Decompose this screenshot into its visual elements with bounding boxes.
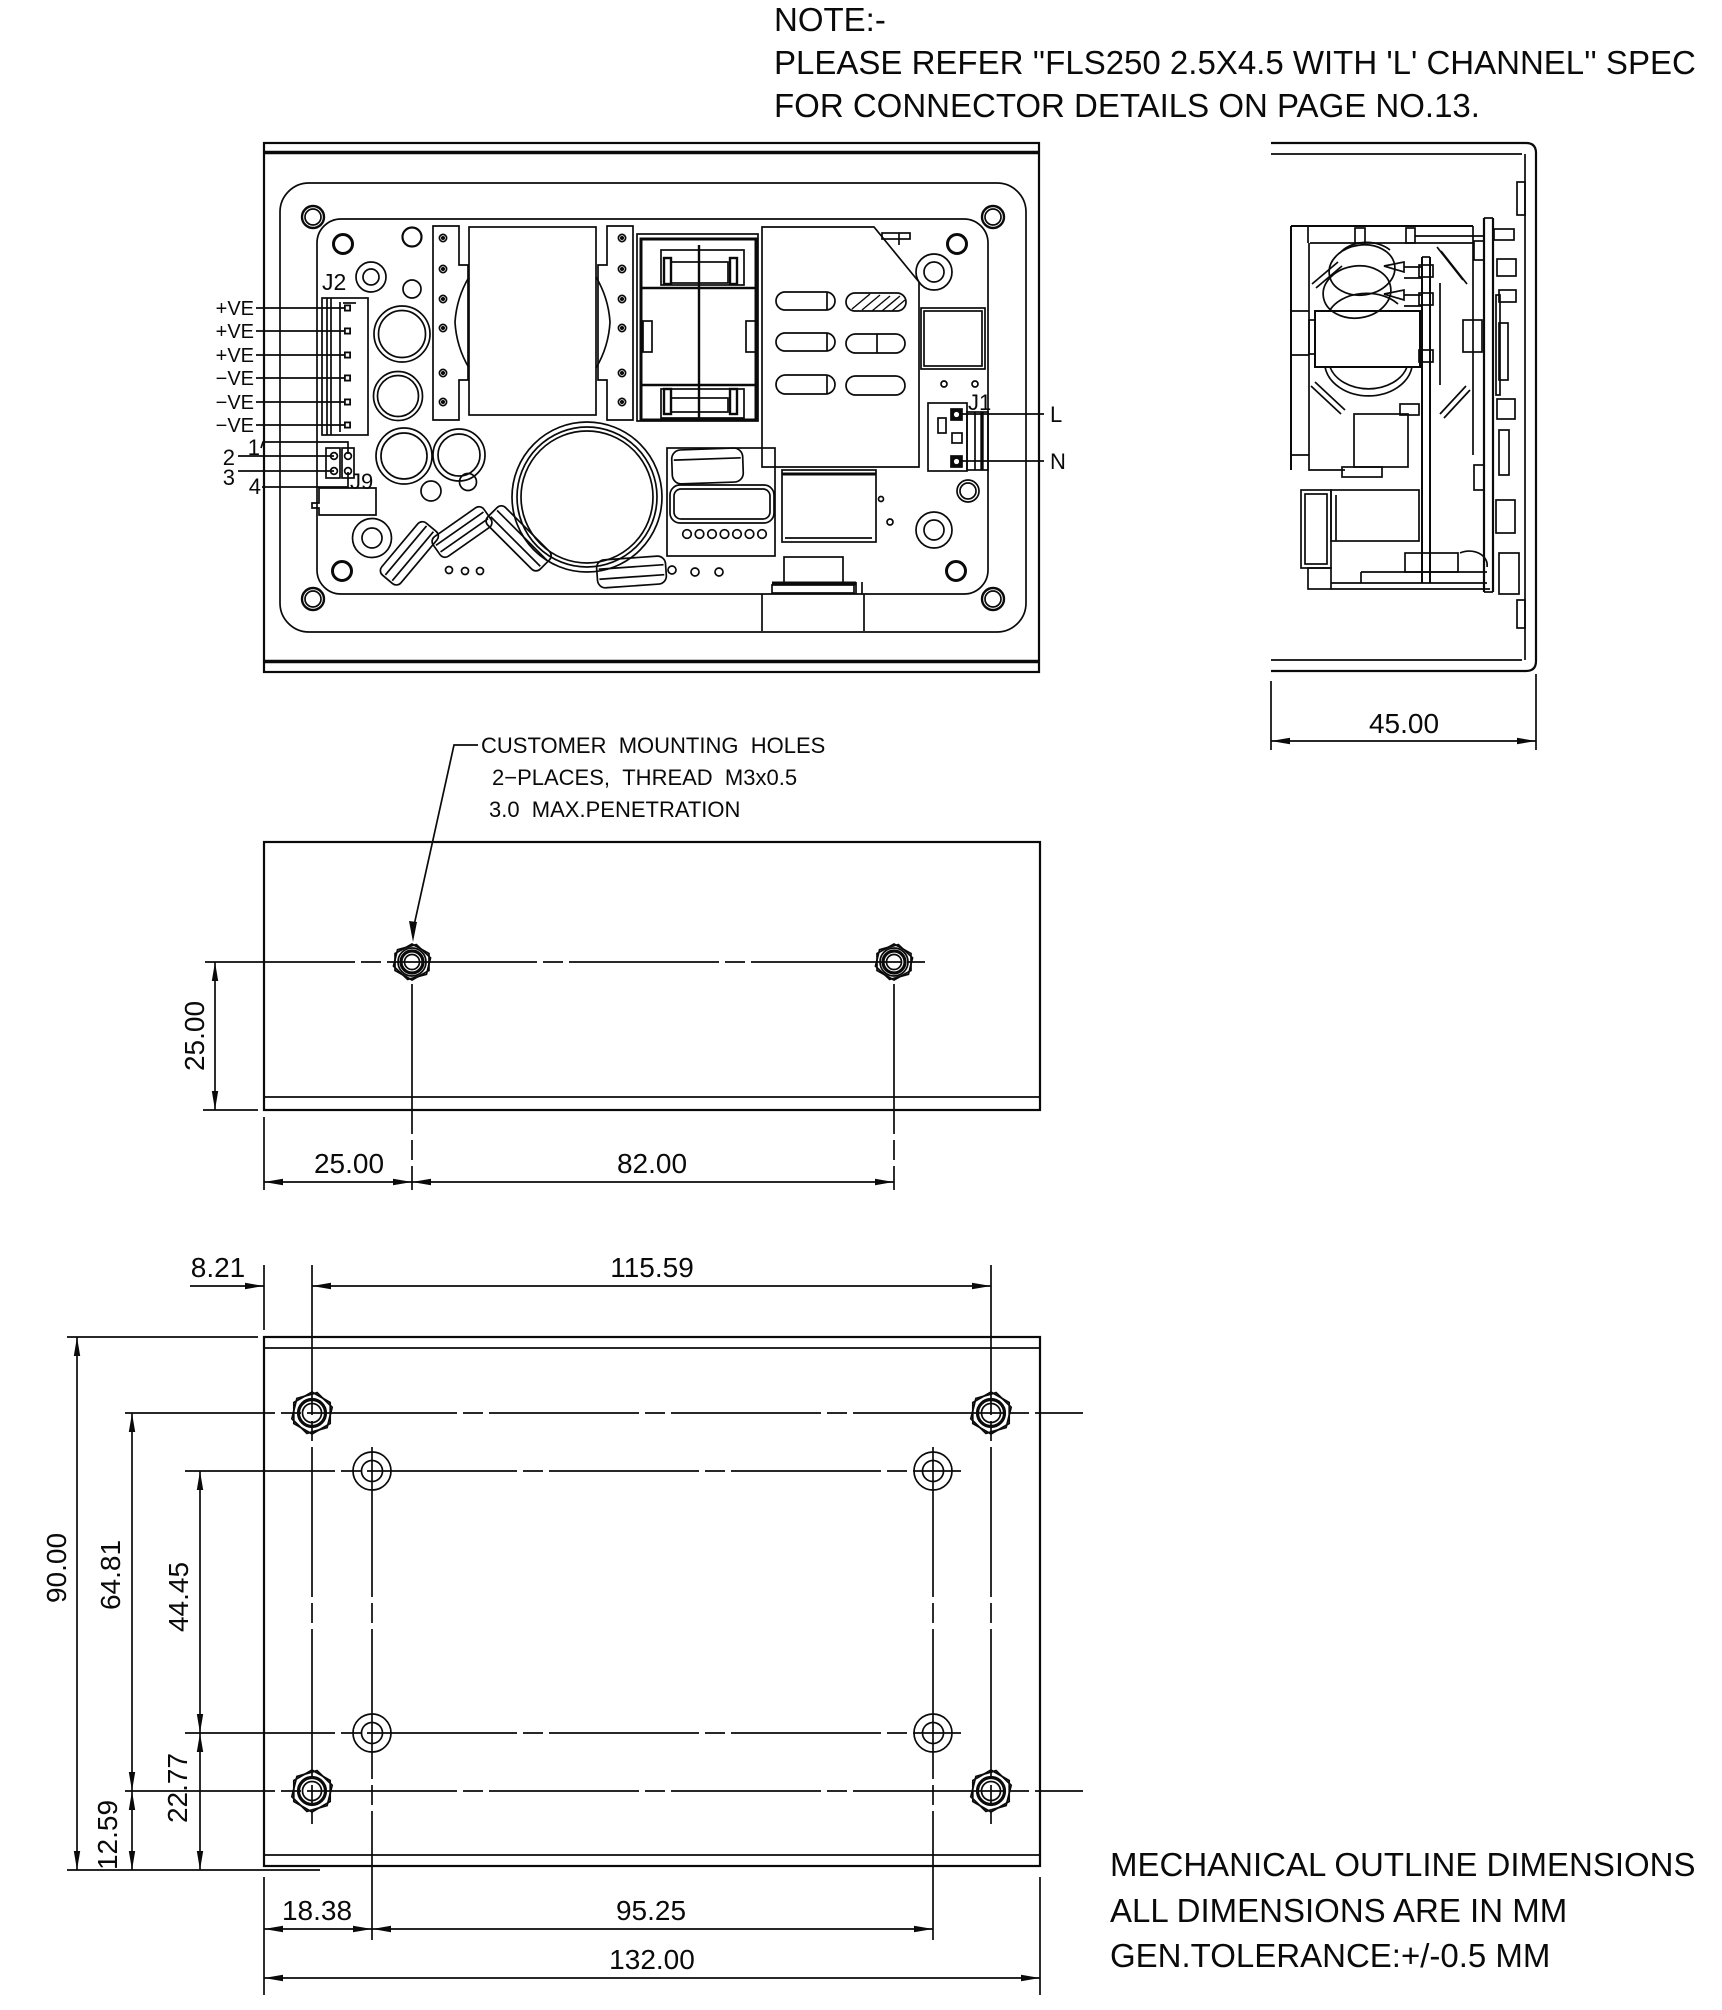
svg-text:115.59: 115.59 — [610, 1252, 694, 1283]
svg-text:90.00: 90.00 — [41, 1533, 72, 1603]
svg-text:3: 3 — [223, 465, 235, 490]
svg-text:J2: J2 — [322, 269, 346, 295]
svg-text:GEN.TOLERANCE:+/-0.5 MM: GEN.TOLERANCE:+/-0.5 MM — [1110, 1937, 1550, 1974]
svg-text:12.59: 12.59 — [92, 1800, 123, 1870]
svg-text:+VE: +VE — [216, 298, 254, 320]
svg-text:−VE: −VE — [216, 392, 254, 414]
svg-text:45.00: 45.00 — [1369, 708, 1439, 739]
svg-text:FOR CONNECTOR DETAILS ON PAGE: FOR CONNECTOR DETAILS ON PAGE NO.13. — [774, 87, 1480, 124]
svg-text:132.00: 132.00 — [609, 1944, 695, 1975]
svg-text:25.00: 25.00 — [314, 1148, 384, 1179]
svg-text:−VE: −VE — [216, 415, 254, 437]
svg-text:3.0 MAX.PENETRATION: 3.0 MAX.PENETRATION — [489, 797, 740, 822]
svg-text:+VE: +VE — [216, 321, 254, 343]
svg-text:18.38: 18.38 — [282, 1895, 352, 1926]
svg-text:4: 4 — [249, 474, 261, 499]
svg-text:N: N — [1050, 449, 1066, 474]
svg-text:25.00: 25.00 — [179, 1001, 210, 1071]
svg-text:82.00: 82.00 — [617, 1148, 687, 1179]
svg-text:95.25: 95.25 — [616, 1895, 686, 1926]
svg-text:64.81: 64.81 — [95, 1540, 126, 1610]
svg-text:−VE: −VE — [216, 368, 254, 390]
svg-text:2−PLACES, THREAD M3x0.5: 2−PLACES, THREAD M3x0.5 — [492, 765, 797, 790]
svg-text:NOTE:-: NOTE:- — [774, 1, 886, 38]
svg-text:J9: J9 — [350, 469, 373, 494]
svg-text:MECHANICAL OUTLINE DIMENSIONS: MECHANICAL OUTLINE DIMENSIONS — [1110, 1846, 1696, 1883]
svg-text:8.21: 8.21 — [191, 1252, 246, 1283]
svg-text:ALL DIMENSIONS ARE IN MM: ALL DIMENSIONS ARE IN MM — [1110, 1892, 1567, 1929]
svg-text:L: L — [1050, 402, 1062, 427]
svg-text:22.77: 22.77 — [162, 1753, 193, 1823]
svg-text:PLEASE REFER ''FLS250 2.5X4.5: PLEASE REFER ''FLS250 2.5X4.5 WITH 'L' C… — [774, 44, 1696, 81]
svg-text:CUSTOMER MOUNTING HOLES: CUSTOMER MOUNTING HOLES — [481, 733, 825, 758]
svg-text:+VE: +VE — [216, 345, 254, 367]
svg-text:44.45: 44.45 — [163, 1562, 194, 1632]
